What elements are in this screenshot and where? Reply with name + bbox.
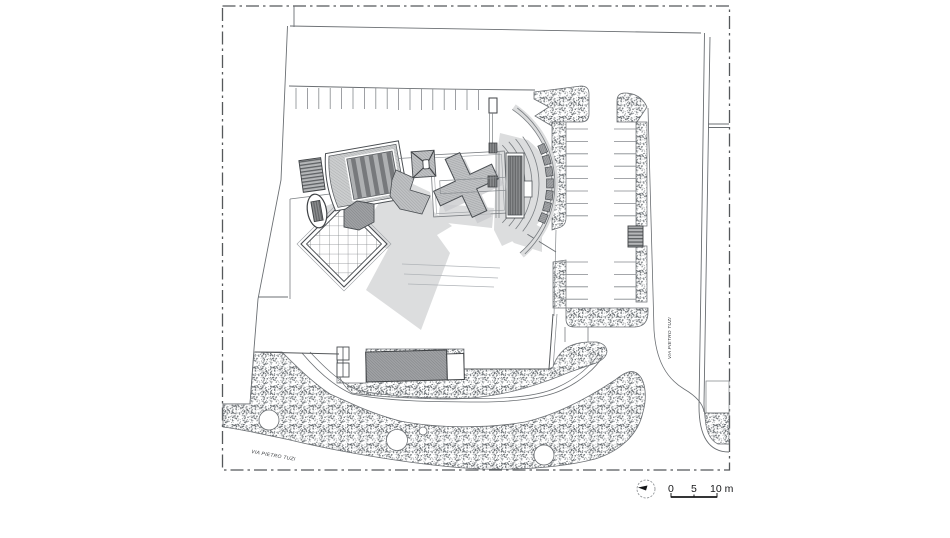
svg-text:VIA PIETRO TUZI: VIA PIETRO TUZI [667, 317, 673, 359]
svg-text:10 m: 10 m [710, 483, 734, 495]
svg-text:5: 5 [691, 483, 697, 495]
